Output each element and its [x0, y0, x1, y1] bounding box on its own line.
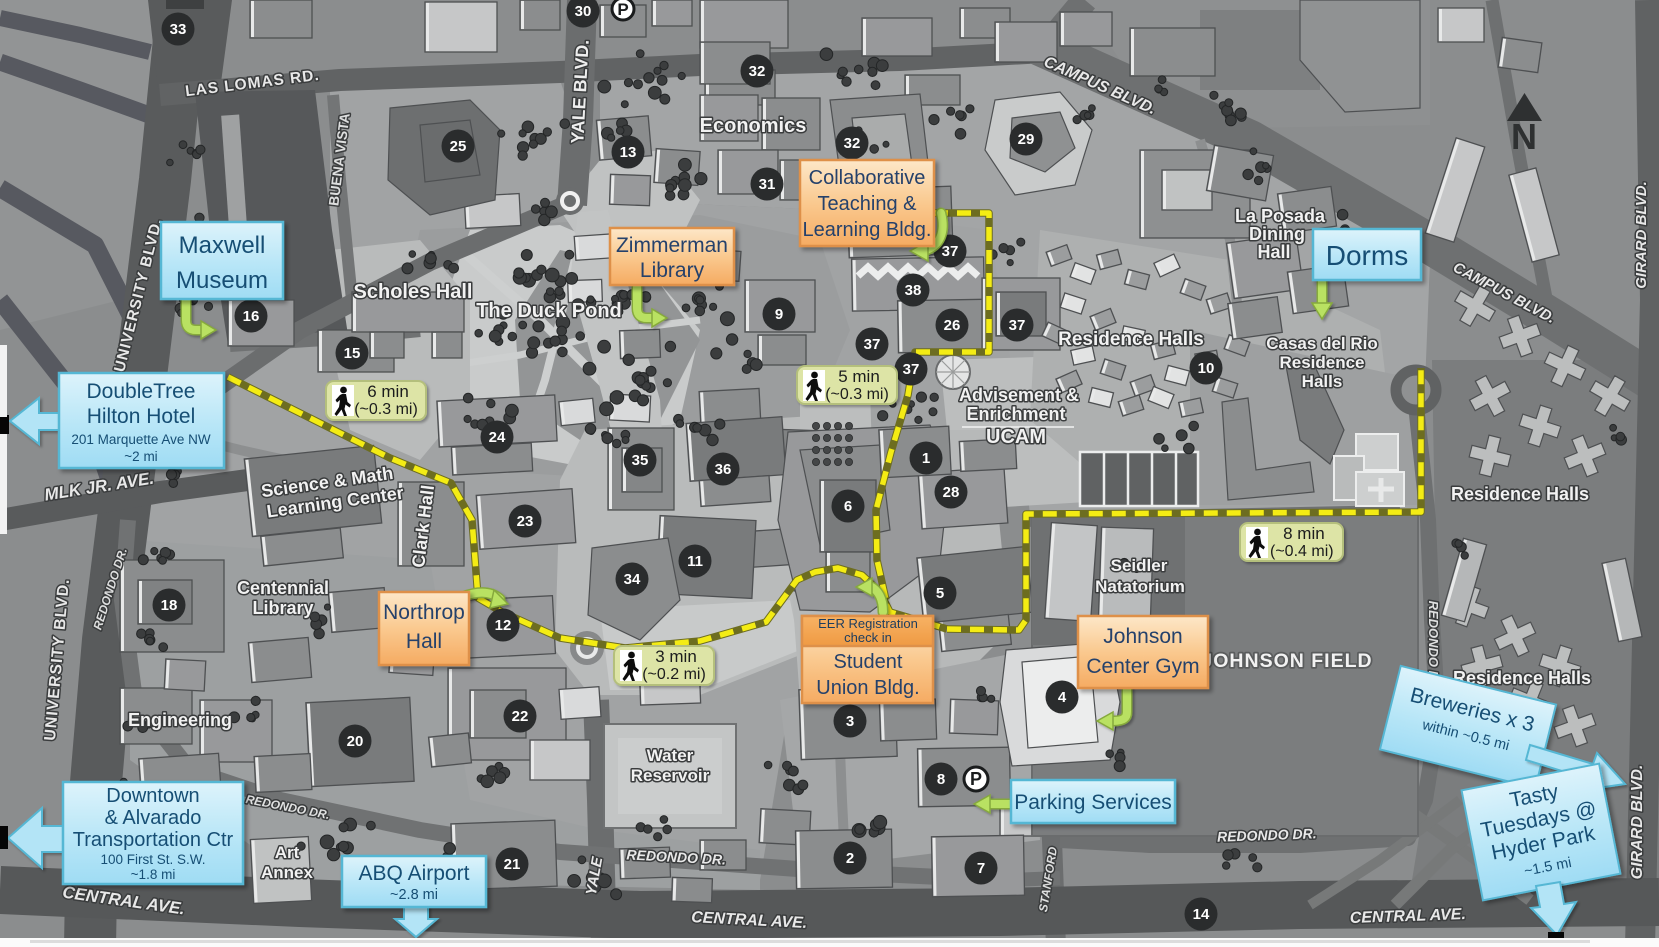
svg-text:32: 32 — [749, 63, 766, 80]
svg-text:26: 26 — [944, 317, 961, 334]
svg-text:7: 7 — [977, 860, 985, 877]
svg-text:Enrichment: Enrichment — [966, 404, 1065, 424]
svg-text:(~0.2 mi): (~0.2 mi) — [642, 666, 706, 683]
svg-text:ABQ Airport: ABQ Airport — [359, 862, 470, 885]
svg-text:16: 16 — [243, 308, 260, 325]
svg-text:11: 11 — [687, 553, 703, 570]
svg-text:37: 37 — [864, 336, 881, 353]
svg-text:13: 13 — [620, 144, 637, 161]
svg-text:Maxwell: Maxwell — [179, 232, 266, 259]
svg-text:21: 21 — [504, 856, 521, 873]
svg-text:~1.8 mi: ~1.8 mi — [131, 867, 176, 882]
svg-text:Economics: Economics — [700, 115, 807, 137]
svg-text:JOHNSON FIELD: JOHNSON FIELD — [1201, 650, 1372, 672]
svg-text:(~0.3 mi): (~0.3 mi) — [825, 386, 889, 403]
svg-text:Transportation Ctr: Transportation Ctr — [73, 829, 234, 851]
svg-text:Library: Library — [252, 598, 313, 618]
svg-text:Hall: Hall — [406, 630, 442, 653]
svg-text:4: 4 — [1058, 689, 1067, 706]
svg-text:12: 12 — [495, 617, 512, 634]
svg-text:Hall: Hall — [1257, 242, 1290, 262]
svg-text:Johnson: Johnson — [1103, 625, 1182, 648]
svg-text:32: 32 — [844, 135, 861, 152]
svg-text:3 min: 3 min — [655, 647, 697, 666]
svg-text:37: 37 — [903, 361, 920, 378]
svg-text:Halls: Halls — [1302, 372, 1343, 391]
svg-text:DoubleTree: DoubleTree — [87, 380, 196, 403]
svg-text:Collaborative: Collaborative — [809, 167, 926, 189]
svg-text:37: 37 — [1009, 317, 1026, 334]
svg-text:6 min: 6 min — [367, 382, 409, 401]
svg-text:& Alvarado: & Alvarado — [105, 807, 202, 829]
svg-text:Residence Halls: Residence Halls — [1058, 329, 1204, 350]
svg-text:The Duck Pond: The Duck Pond — [476, 300, 622, 322]
svg-text:Northrop: Northrop — [383, 601, 465, 624]
svg-text:Engineering: Engineering — [128, 710, 232, 730]
svg-text:33: 33 — [170, 21, 187, 38]
svg-text:EER Registration: EER Registration — [818, 616, 918, 631]
svg-text:37: 37 — [942, 243, 959, 260]
svg-text:100 First St. S.W.: 100 First St. S.W. — [100, 852, 205, 867]
svg-text:2: 2 — [846, 850, 854, 867]
svg-text:Museum: Museum — [176, 267, 268, 294]
svg-text:Parking Services: Parking Services — [1014, 791, 1172, 814]
svg-text:34: 34 — [624, 571, 641, 588]
svg-text:GIRARD BLVD.: GIRARD BLVD. — [1633, 181, 1650, 289]
svg-text:Union Bldg.: Union Bldg. — [816, 677, 919, 699]
svg-text:Zimmerman: Zimmerman — [616, 234, 728, 257]
svg-text:29: 29 — [1018, 131, 1035, 148]
svg-text:14: 14 — [1193, 906, 1210, 923]
svg-text:24: 24 — [489, 429, 506, 446]
svg-text:Centennial: Centennial — [237, 578, 329, 598]
svg-text:Dorms: Dorms — [1326, 240, 1408, 271]
svg-text:31: 31 — [759, 176, 776, 193]
svg-text:Teaching &: Teaching & — [818, 193, 918, 215]
svg-text:La Posada: La Posada — [1235, 206, 1326, 226]
svg-text:Residence: Residence — [1279, 353, 1364, 372]
svg-text:Water: Water — [647, 746, 694, 765]
svg-text:P: P — [617, 0, 628, 19]
svg-text:P: P — [970, 769, 982, 789]
svg-text:Reservoir: Reservoir — [631, 766, 710, 785]
svg-text:5: 5 — [936, 585, 944, 602]
svg-text:36: 36 — [715, 461, 732, 478]
svg-text:Annex: Annex — [261, 863, 314, 882]
svg-text:22: 22 — [512, 708, 529, 725]
svg-text:Art: Art — [275, 843, 300, 862]
svg-text:23: 23 — [517, 513, 534, 530]
svg-text:UCAM: UCAM — [986, 426, 1046, 448]
svg-text:28: 28 — [943, 484, 960, 501]
svg-text:5 min: 5 min — [838, 367, 880, 386]
svg-text:Hilton Hotel: Hilton Hotel — [87, 405, 196, 428]
svg-text:201 Marquette Ave NW: 201 Marquette Ave NW — [71, 432, 211, 447]
svg-text:Center Gym: Center Gym — [1086, 655, 1199, 678]
svg-text:18: 18 — [161, 597, 178, 614]
svg-text:~2 mi: ~2 mi — [124, 449, 157, 464]
svg-text:20: 20 — [347, 733, 364, 750]
svg-text:N: N — [1511, 116, 1537, 157]
svg-text:(~0.4 mi): (~0.4 mi) — [1270, 543, 1334, 560]
svg-text:Residence Halls: Residence Halls — [1451, 484, 1589, 504]
svg-text:Downtown: Downtown — [106, 785, 199, 807]
svg-text:3: 3 — [846, 713, 854, 730]
svg-text:check in: check in — [844, 630, 892, 645]
svg-text:Natatorium: Natatorium — [1095, 577, 1185, 596]
svg-text:Seidler: Seidler — [1111, 556, 1168, 575]
svg-text:Dining: Dining — [1249, 224, 1305, 244]
svg-text:35: 35 — [632, 452, 649, 469]
svg-text:1: 1 — [922, 450, 930, 467]
svg-text:Advisement &: Advisement & — [959, 385, 1079, 405]
svg-text:Learning Bldg.: Learning Bldg. — [803, 219, 932, 241]
svg-text:10: 10 — [1198, 360, 1215, 377]
svg-text:15: 15 — [344, 345, 361, 362]
svg-text:~2.8 mi: ~2.8 mi — [390, 887, 438, 903]
svg-text:30: 30 — [575, 3, 592, 20]
svg-text:Scholes Hall: Scholes Hall — [354, 281, 473, 303]
svg-text:9: 9 — [775, 306, 783, 323]
svg-text:Library: Library — [640, 259, 705, 282]
svg-text:8 min: 8 min — [1283, 524, 1325, 543]
svg-text:38: 38 — [905, 282, 922, 299]
svg-text:Student: Student — [834, 651, 903, 673]
svg-text:Casas del Rio: Casas del Rio — [1266, 334, 1378, 353]
svg-text:8: 8 — [937, 771, 945, 788]
svg-text:25: 25 — [450, 138, 467, 155]
svg-text:GIRARD BLVD.: GIRARD BLVD. — [1629, 765, 1646, 880]
svg-text:(~0.3 mi): (~0.3 mi) — [354, 401, 418, 418]
svg-text:6: 6 — [844, 498, 852, 515]
